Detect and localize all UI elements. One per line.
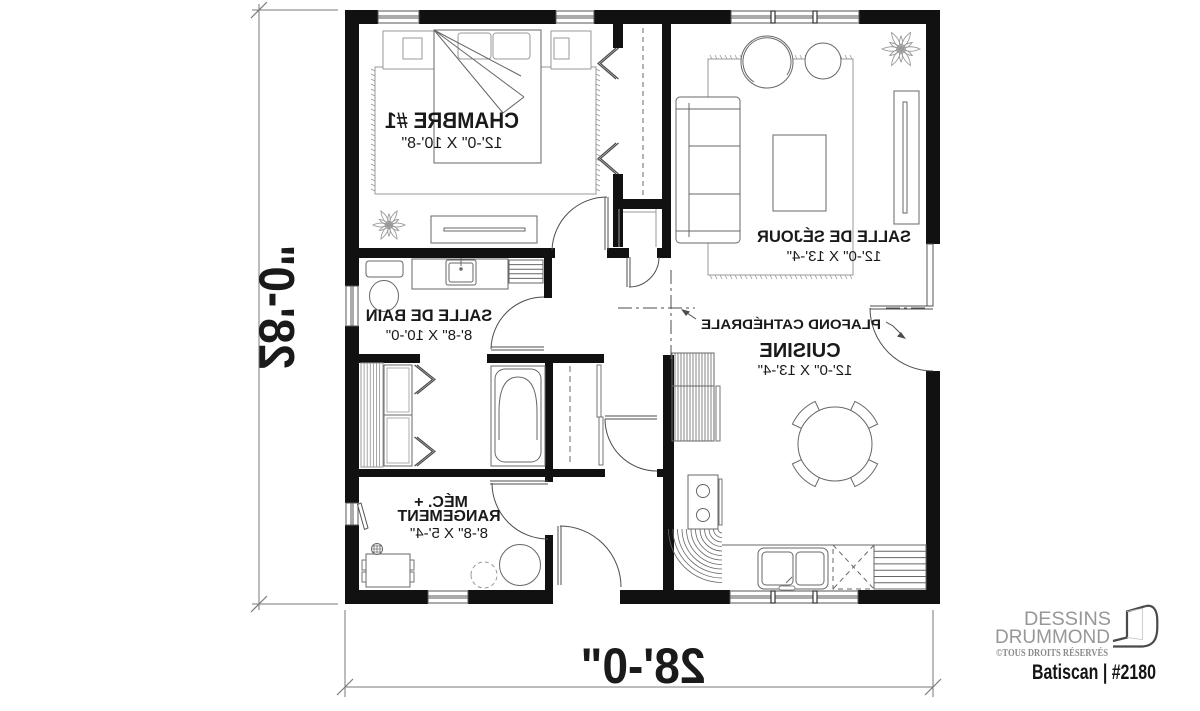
svg-text:PLAFOND CATHÉDRALE: PLAFOND CATHÉDRALE: [701, 316, 881, 332]
svg-text:28'-0": 28'-0": [581, 638, 706, 694]
svg-text:12'-0" X 10'-8": 12'-0" X 10'-8": [401, 135, 502, 152]
svg-text:12'-0" X 13'-4": 12'-0" X 13'-4": [758, 362, 853, 379]
svg-text:CHAMBRE #1: CHAMBRE #1: [385, 108, 519, 133]
svg-text:©TOUS DROITS RÉSERVÉS: ©TOUS DROITS RÉSERVÉS: [996, 647, 1108, 659]
svg-text:SALLE DE SÉJOUR: SALLE DE SÉJOUR: [757, 227, 911, 246]
svg-text:12'-0" X 13'-4": 12'-0" X 13'-4": [787, 248, 882, 265]
svg-text:CUISINE: CUISINE: [759, 340, 840, 362]
svg-text:Batiscan | #2180: Batiscan | #2180: [1032, 661, 1156, 684]
svg-text:28'-0": 28'-0": [249, 245, 305, 370]
svg-text:RANGEMENT: RANGEMENT: [397, 508, 500, 525]
svg-text:8'-8" X 5'-4": 8'-8" X 5'-4": [410, 525, 488, 542]
svg-text:SALLE DE BAIN: SALLE DE BAIN: [366, 307, 493, 325]
svg-text:8'-8" X 10'-0": 8'-8" X 10'-0": [386, 327, 472, 344]
svg-text:DRUMMOND: DRUMMOND: [995, 627, 1110, 648]
